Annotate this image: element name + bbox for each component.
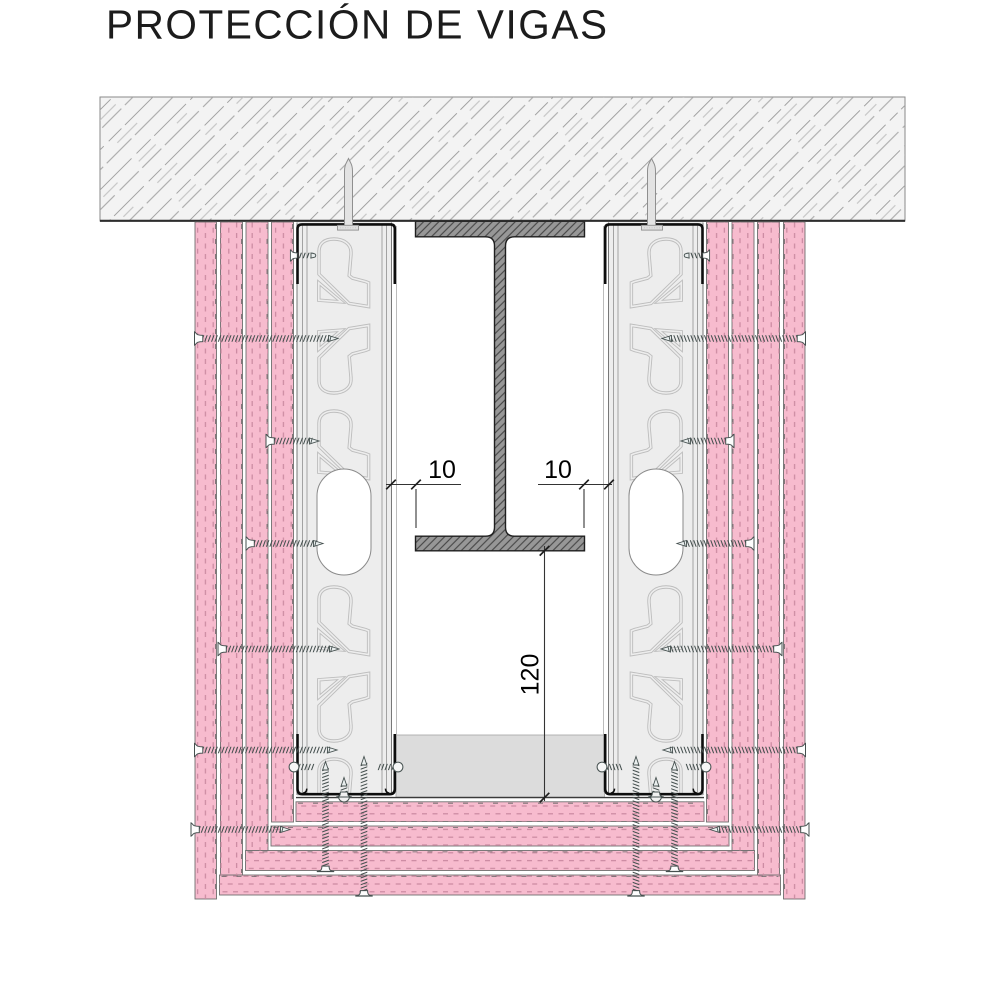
- svg-text:10: 10: [544, 456, 572, 484]
- svg-text:120: 120: [517, 654, 545, 696]
- svg-text:10: 10: [428, 456, 456, 484]
- svg-text:PROTECCIÓN DE VIGAS: PROTECCIÓN DE VIGAS: [106, 2, 607, 48]
